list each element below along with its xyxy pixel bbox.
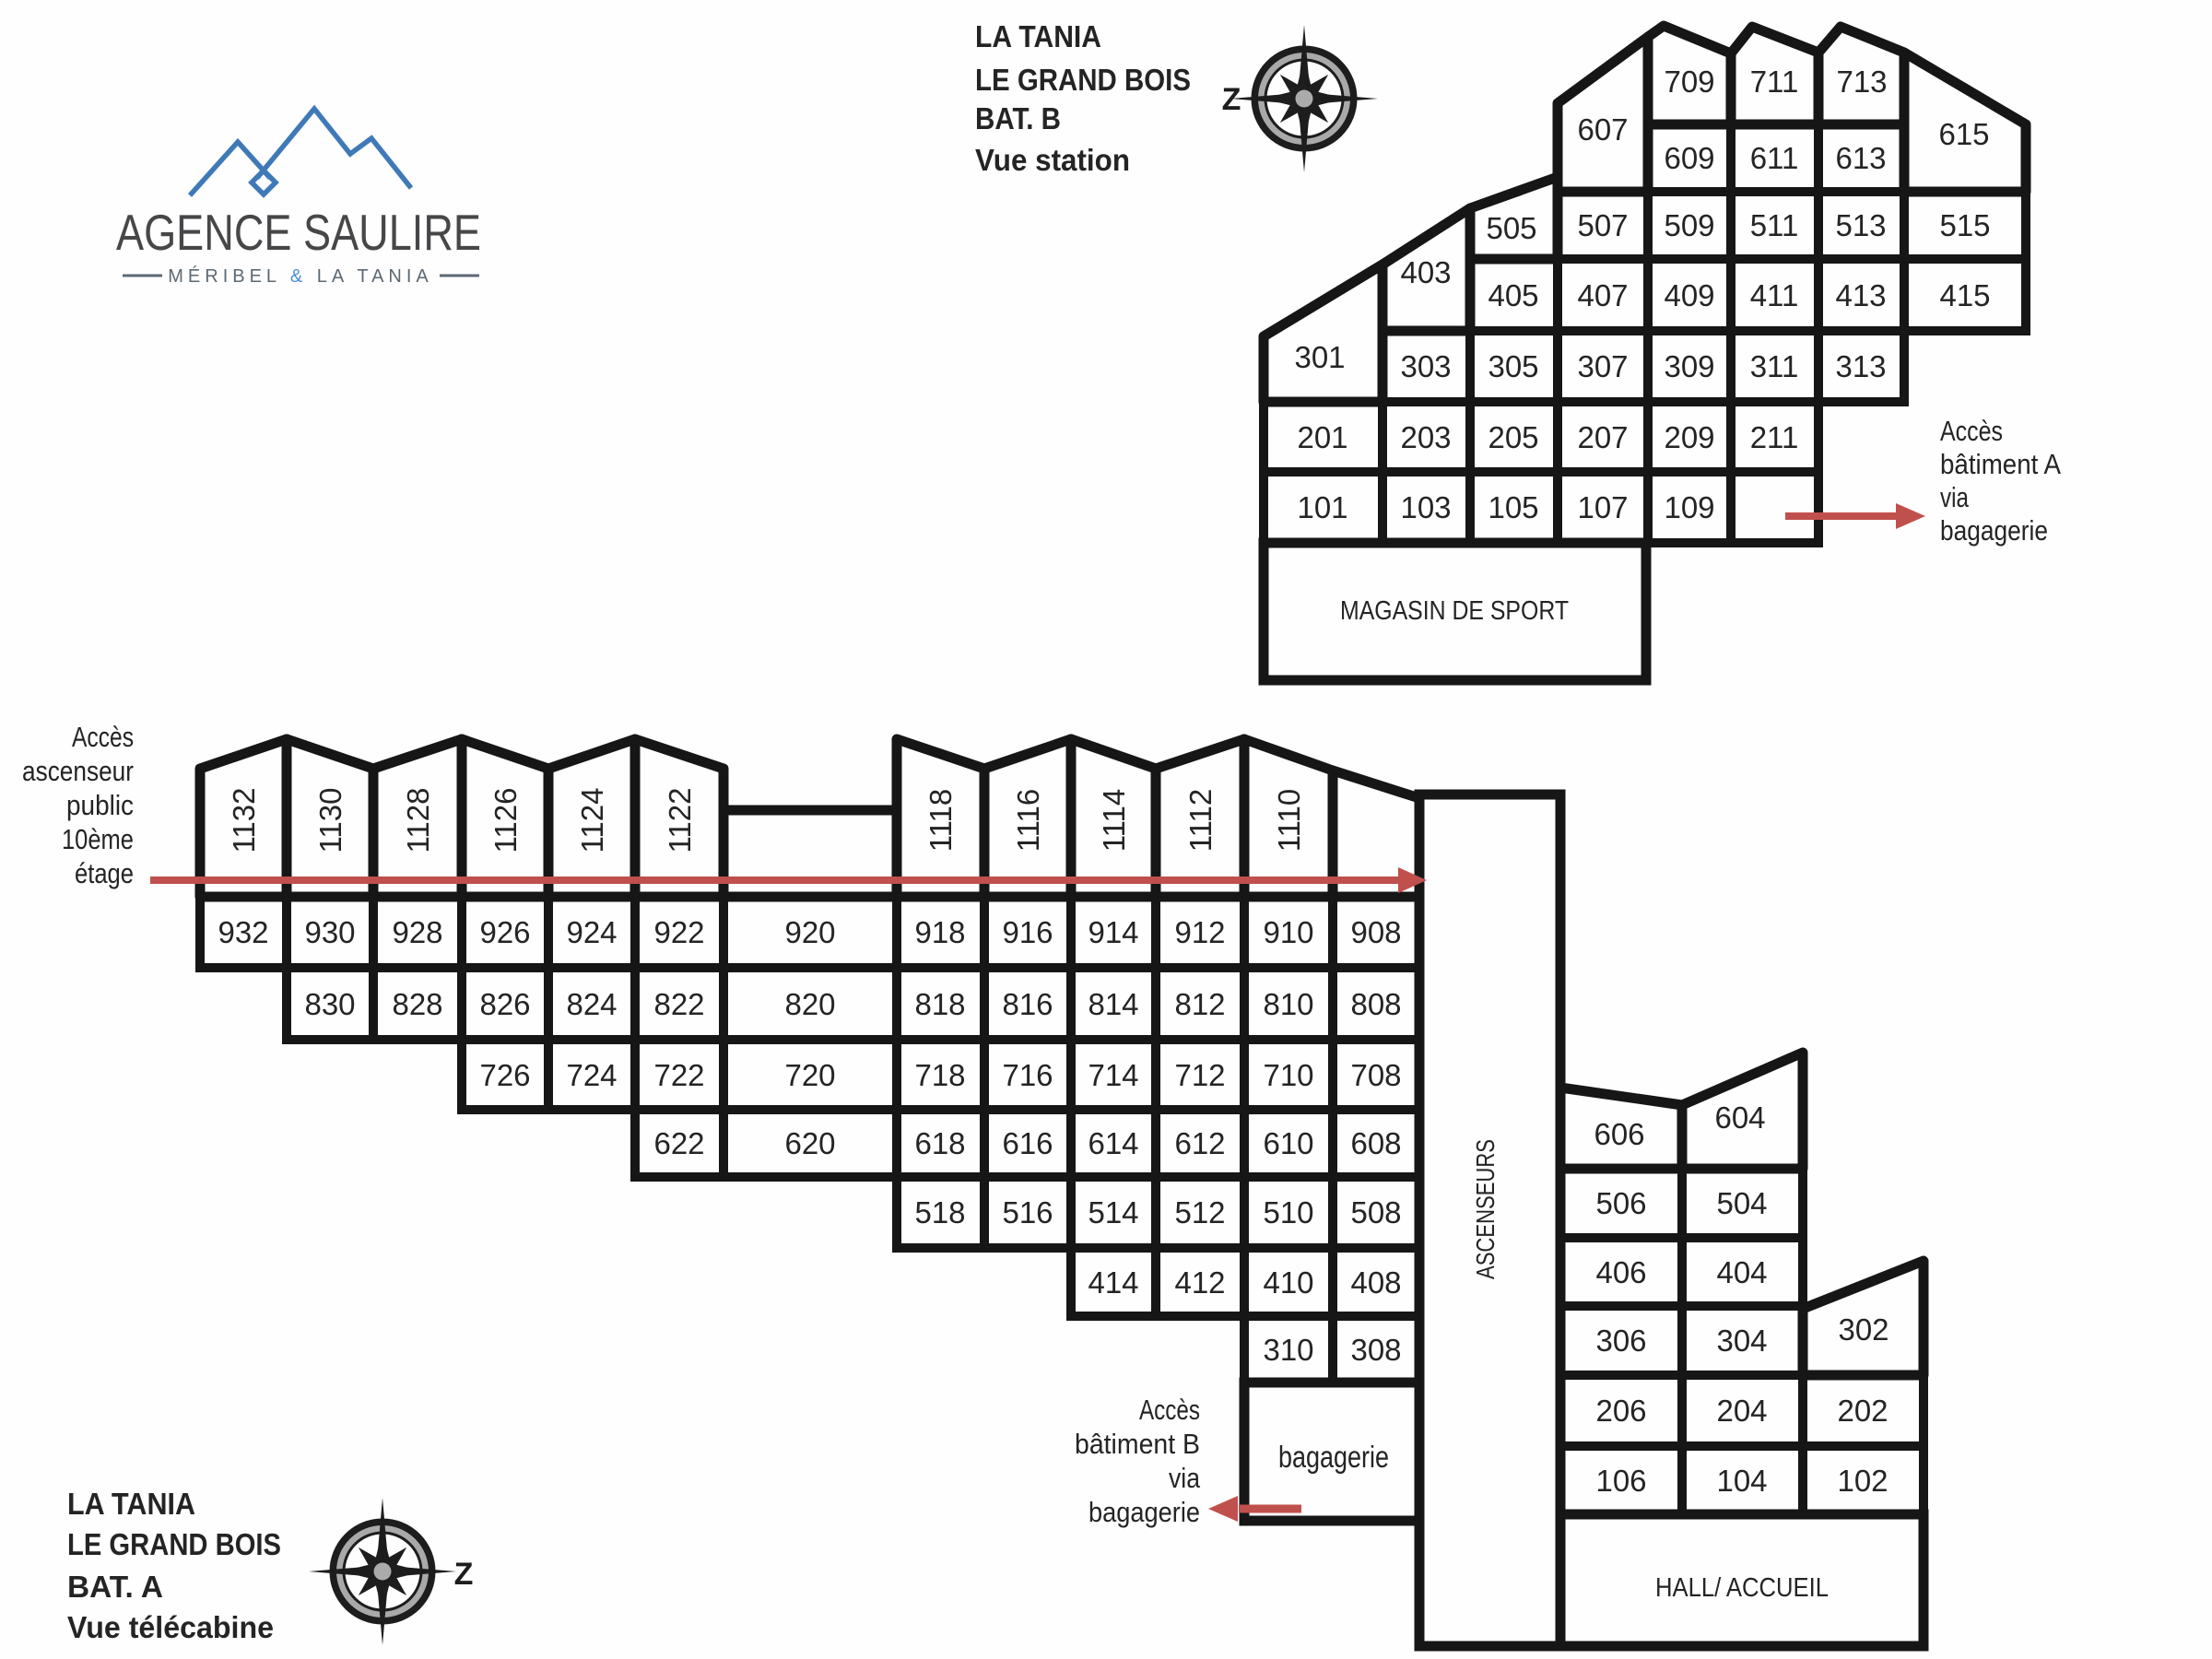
svg-text:1124: 1124 [575,788,609,853]
svg-text:714: 714 [1088,1058,1138,1092]
svg-text:AGENCE SAULIRE: AGENCE SAULIRE [116,204,481,261]
svg-text:920: 920 [784,915,835,949]
svg-text:1112: 1112 [1183,789,1218,853]
svg-text:618: 618 [914,1126,965,1160]
svg-text:Z: Z [454,1557,474,1592]
svg-text:207: 207 [1577,420,1628,454]
svg-text:bagagerie: bagagerie [1088,1496,1200,1528]
svg-text:726: 726 [479,1058,530,1092]
svg-text:204: 204 [1716,1394,1767,1428]
svg-text:LE GRAND BOIS: LE GRAND BOIS [67,1527,281,1561]
svg-text:608: 608 [1350,1126,1401,1160]
svg-text:1126: 1126 [488,788,523,853]
svg-text:414: 414 [1088,1265,1138,1300]
svg-text:209: 209 [1664,420,1714,454]
svg-text:bagagerie: bagagerie [1278,1440,1389,1474]
svg-text:408: 408 [1350,1265,1401,1300]
svg-text:1132: 1132 [227,788,261,853]
svg-text:615: 615 [1938,117,1989,151]
svg-text:LA TANIA: LA TANIA [67,1487,195,1521]
svg-text:616: 616 [1002,1126,1053,1160]
svg-text:109: 109 [1664,490,1714,524]
svg-text:808: 808 [1350,987,1401,1021]
svg-text:924: 924 [566,915,617,949]
svg-text:518: 518 [914,1195,965,1230]
svg-text:201: 201 [1297,420,1347,454]
svg-text:LE GRAND BOIS: LE GRAND BOIS [975,63,1191,97]
svg-text:710: 710 [1263,1058,1313,1092]
svg-text:712: 712 [1174,1058,1225,1092]
svg-text:étage: étage [75,857,134,889]
svg-text:MAGASIN DE SPORT: MAGASIN DE SPORT [1340,596,1569,626]
svg-text:413: 413 [1835,278,1886,312]
svg-text:1128: 1128 [401,788,435,853]
svg-text:926: 926 [479,915,530,949]
svg-text:Accès: Accès [1940,415,2003,447]
svg-text:public: public [66,789,134,821]
svg-text:511: 511 [1750,208,1799,242]
svg-text:711: 711 [1750,65,1799,99]
svg-text:818: 818 [914,987,965,1021]
svg-text:405: 405 [1488,278,1538,312]
svg-text:510: 510 [1263,1195,1313,1230]
svg-text:305: 305 [1488,349,1538,383]
svg-text:101: 101 [1297,490,1347,524]
svg-text:620: 620 [784,1126,835,1160]
svg-text:Accès: Accès [1139,1394,1200,1426]
svg-text:via: via [1940,481,1970,513]
svg-text:718: 718 [914,1058,965,1092]
svg-text:BAT. B: BAT. B [975,101,1061,135]
svg-text:406: 406 [1595,1255,1646,1289]
svg-text:via: via [1169,1462,1201,1494]
svg-text:928: 928 [392,915,442,949]
svg-text:105: 105 [1488,490,1538,524]
svg-text:104: 104 [1716,1464,1767,1498]
svg-text:930: 930 [304,915,355,949]
svg-text:816: 816 [1002,987,1053,1021]
svg-text:309: 309 [1664,349,1714,383]
svg-text:ascenseur: ascenseur [22,755,134,787]
svg-text:MÉRIBEL & LA TANIA: MÉRIBEL & LA TANIA [168,265,433,287]
svg-text:313: 313 [1835,349,1886,383]
svg-text:bâtiment B: bâtiment B [1075,1428,1200,1460]
svg-text:107: 107 [1577,490,1628,524]
svg-text:606: 606 [1594,1117,1644,1151]
svg-text:Accès: Accès [72,721,134,753]
svg-text:516: 516 [1002,1195,1053,1230]
svg-text:513: 513 [1835,208,1886,242]
svg-text:Vue télécabine: Vue télécabine [67,1610,274,1644]
svg-text:409: 409 [1664,278,1714,312]
svg-text:412: 412 [1174,1265,1225,1300]
svg-text:BAT. A: BAT. A [67,1570,163,1604]
svg-text:404: 404 [1716,1255,1767,1289]
svg-text:1122: 1122 [663,788,697,853]
svg-text:918: 918 [914,915,965,949]
svg-text:709: 709 [1664,65,1714,99]
svg-text:611: 611 [1750,141,1799,175]
svg-text:306: 306 [1595,1324,1646,1358]
svg-text:bagagerie: bagagerie [1940,514,2048,547]
svg-text:922: 922 [653,915,704,949]
svg-text:609: 609 [1664,141,1714,175]
svg-text:824: 824 [566,987,617,1021]
svg-text:828: 828 [392,987,442,1021]
svg-text:912: 912 [1174,915,1225,949]
svg-text:10ème: 10ème [62,823,134,855]
svg-text:102: 102 [1837,1464,1888,1498]
svg-text:1114: 1114 [1097,789,1131,853]
svg-text:932: 932 [218,915,268,949]
svg-text:311: 311 [1750,349,1799,383]
svg-text:307: 307 [1577,349,1628,383]
svg-text:1130: 1130 [313,788,347,853]
svg-text:205: 205 [1488,420,1538,454]
svg-text:812: 812 [1174,987,1225,1021]
svg-text:302: 302 [1838,1312,1888,1347]
svg-text:411: 411 [1750,278,1799,312]
svg-text:604: 604 [1714,1100,1765,1135]
svg-text:512: 512 [1174,1195,1225,1230]
svg-text:407: 407 [1577,278,1628,312]
svg-text:622: 622 [653,1126,704,1160]
svg-text:1110: 1110 [1272,789,1306,853]
svg-text:713: 713 [1836,65,1887,99]
svg-text:724: 724 [566,1058,617,1092]
svg-text:722: 722 [653,1058,704,1092]
svg-text:820: 820 [784,987,835,1021]
svg-text:308: 308 [1350,1333,1401,1367]
svg-text:826: 826 [479,987,530,1021]
svg-text:810: 810 [1263,987,1313,1021]
svg-text:202: 202 [1837,1394,1888,1428]
svg-text:610: 610 [1263,1126,1313,1160]
svg-text:613: 613 [1835,141,1886,175]
svg-text:Z: Z [1222,82,1241,117]
svg-text:708: 708 [1350,1058,1401,1092]
svg-text:505: 505 [1486,211,1536,245]
svg-text:614: 614 [1088,1126,1138,1160]
svg-text:508: 508 [1350,1195,1401,1230]
svg-text:303: 303 [1400,349,1451,383]
svg-text:403: 403 [1400,255,1451,289]
svg-text:509: 509 [1664,208,1714,242]
svg-text:507: 507 [1577,208,1628,242]
svg-text:612: 612 [1174,1126,1225,1160]
svg-text:106: 106 [1595,1464,1646,1498]
svg-text:716: 716 [1002,1058,1053,1092]
svg-text:830: 830 [304,987,355,1021]
svg-text:1116: 1116 [1011,789,1045,853]
svg-text:103: 103 [1400,490,1451,524]
svg-text:1118: 1118 [924,789,958,853]
svg-text:504: 504 [1716,1186,1767,1220]
svg-text:822: 822 [653,987,704,1021]
svg-text:506: 506 [1595,1186,1646,1220]
svg-text:HALL/ ACCUEIL: HALL/ ACCUEIL [1655,1573,1829,1603]
svg-text:203: 203 [1400,420,1451,454]
svg-text:914: 914 [1088,915,1138,949]
svg-text:908: 908 [1350,915,1401,949]
svg-text:415: 415 [1939,278,1990,312]
svg-text:910: 910 [1263,915,1313,949]
svg-text:206: 206 [1595,1394,1646,1428]
svg-text:bâtiment A: bâtiment A [1940,448,2061,480]
svg-text:916: 916 [1002,915,1053,949]
svg-text:720: 720 [784,1058,835,1092]
svg-text:514: 514 [1088,1195,1138,1230]
svg-text:ASCENSEURS: ASCENSEURS [1471,1139,1500,1279]
svg-text:607: 607 [1577,112,1628,147]
svg-text:211: 211 [1750,420,1799,454]
svg-text:LA TANIA: LA TANIA [975,19,1101,53]
svg-text:410: 410 [1263,1265,1313,1300]
svg-text:301: 301 [1294,340,1345,374]
svg-text:Vue station: Vue station [975,143,1130,177]
svg-text:814: 814 [1088,987,1138,1021]
svg-text:515: 515 [1939,208,1990,242]
svg-text:304: 304 [1716,1324,1767,1358]
svg-text:310: 310 [1263,1333,1313,1367]
